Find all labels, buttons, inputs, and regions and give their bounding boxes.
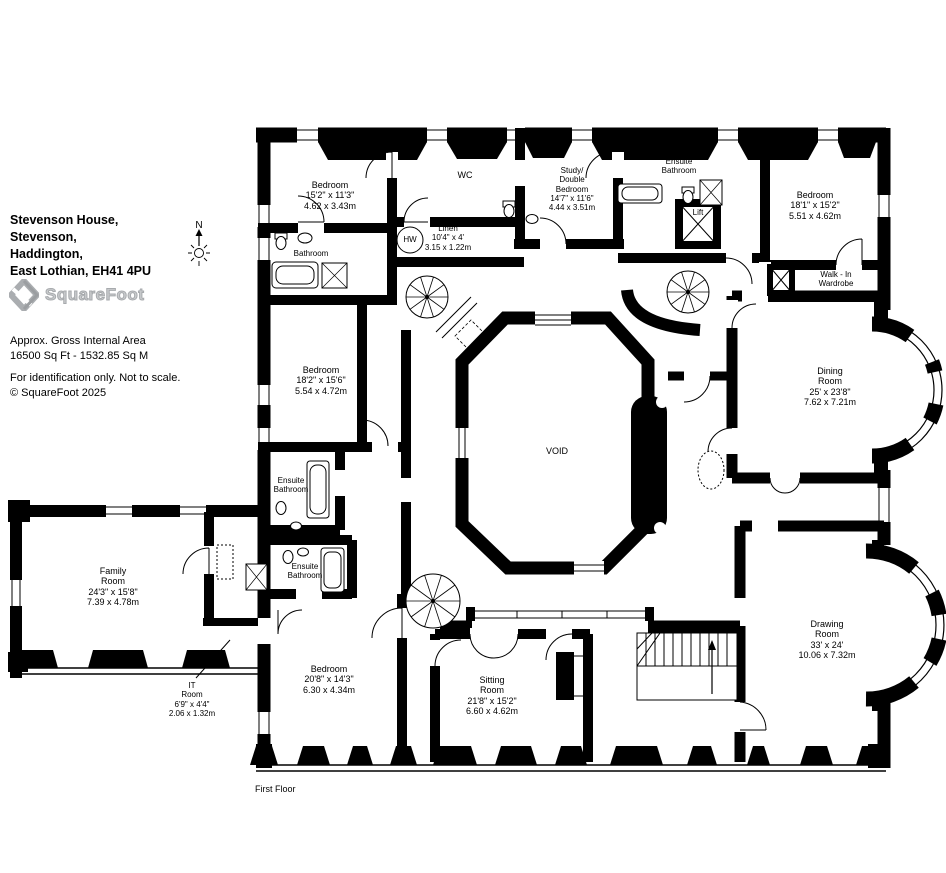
sink (298, 233, 312, 243)
room-label-drawing-room: DrawingRoom33' x 24'10.06 x 7.32m (798, 619, 855, 661)
toilet (276, 502, 286, 515)
room-label-void: VOID (546, 446, 568, 456)
address-line: Stevenson House, (10, 212, 151, 229)
room-label-dining-room: DiningRoom25' x 23'8"7.62 x 7.21m (804, 366, 856, 408)
squarefoot-logo-icon (9, 279, 39, 311)
corridor-dashed-ellipse (698, 451, 724, 489)
room-label-lift: Lift (693, 208, 704, 217)
disclaimer-text: For identification only. Not to scale. (10, 371, 180, 386)
room-label-bedroom-mid-left: Bedroom18'2" x 15'6"5.54 x 4.72m (295, 365, 347, 396)
room-label-walk-in-wardrobe: Walk - InWardrobe (819, 270, 854, 289)
bottom-wall (250, 744, 886, 771)
sink (291, 522, 302, 530)
toilet (276, 237, 286, 250)
area-info: Approx. Gross Internal Area 16500 Sq Ft … (10, 334, 148, 364)
room-label-family-room: FamilyRoom24'3" x 15'8"7.39 x 4.78m (87, 566, 139, 608)
floorplan-page: N Stevenson House, Stevenson, Haddington… (0, 0, 946, 873)
address-line: Stevenson, (10, 229, 151, 246)
floor-level-label: First Floor (255, 784, 296, 794)
room-label-bedroom-top-left: Bedroom15'2" x 11'3"4.62 x 3.43m (304, 180, 356, 211)
room-label-wc: WC (458, 170, 473, 180)
sitting-chimney (556, 652, 583, 700)
toilet (504, 205, 514, 218)
room-label-ensuite-bathroom-top: EnsuiteBathroom (662, 157, 697, 176)
room-label-ensuite-bathroom-lower: EnsuiteBathroom (288, 562, 323, 581)
squarefoot-logo-text: SquareFoot (45, 285, 144, 305)
copyright-text: © SquareFoot 2025 (10, 386, 180, 401)
spiral-stair (406, 574, 460, 628)
room-label-bedroom-top-right: Bedroom18'1" x 15'2"5.51 x 4.62m (789, 190, 841, 221)
main-staircase (637, 633, 737, 700)
compass: N (188, 220, 210, 266)
address-line: Haddington, (10, 246, 151, 263)
sink (298, 548, 309, 556)
room-label-ensuite-bathroom-mid: EnsuiteBathroom (274, 476, 309, 495)
squarefoot-logo: SquareFoot (9, 279, 144, 311)
room-label-bedroom-bottom-left: Bedroom20'8" x 14'3"6.30 x 4.34m (303, 664, 355, 695)
address-line: East Lothian, EH41 4PU (10, 263, 151, 280)
area-label: Approx. Gross Internal Area (10, 334, 148, 349)
drawing-bay-window (866, 540, 944, 711)
room-label-hot-water: HW (403, 235, 416, 244)
sink (526, 215, 538, 224)
area-value: 16500 Sq Ft - 1532.85 Sq M (10, 349, 148, 364)
room-label-study-double-bedroom: Study/DoubleBedroom14'7" x 11'6"4.44 x 3… (549, 166, 595, 212)
room-label-it-room: ITRoom6'9" x 4'4"2.06 x 1.32m (169, 681, 215, 718)
room-label-linen: Linen10'4" x 4'3.15 x 1.22m (425, 224, 471, 252)
void-octagon (436, 297, 668, 575)
property-address: Stevenson House, Stevenson, Haddington, … (10, 212, 151, 280)
floorplan-drawing: N (0, 0, 946, 873)
cupboard-dashed (217, 545, 233, 579)
toilet (683, 191, 693, 204)
disclaimer: For identification only. Not to scale. ©… (10, 371, 180, 401)
room-label-bathroom: Bathroom (294, 249, 329, 258)
dining-bay-window (872, 300, 942, 476)
spiral-stair (406, 276, 448, 318)
spiral-stair (667, 271, 709, 313)
room-label-sitting-room: SittingRoom21'8" x 15'2"6.60 x 4.62m (466, 675, 518, 717)
